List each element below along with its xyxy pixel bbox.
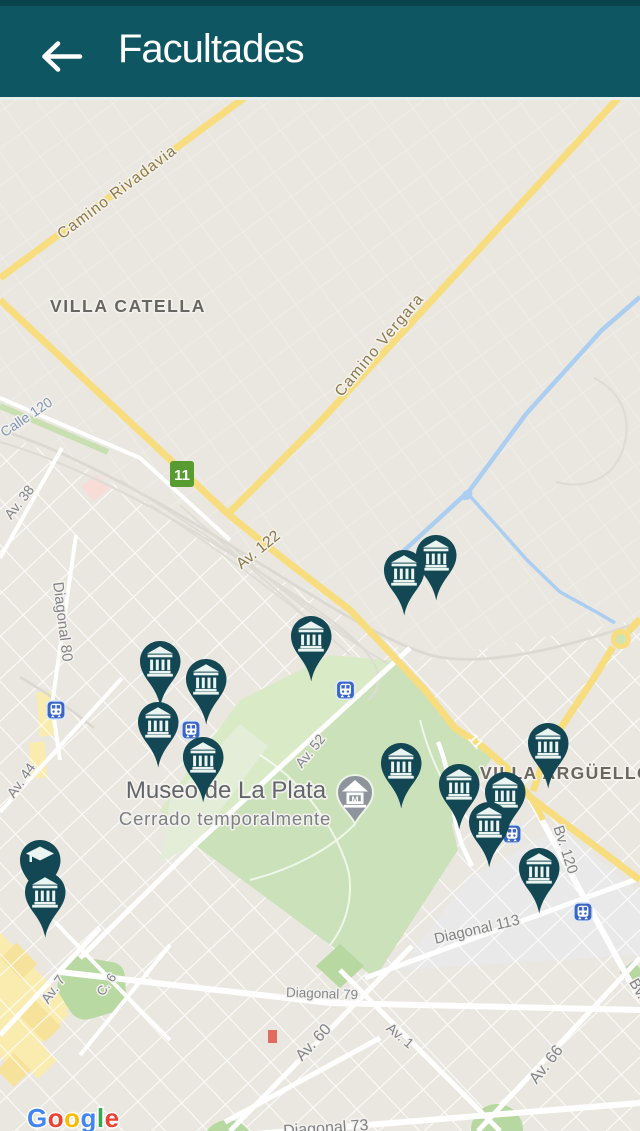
svg-text:Facultades: Facultades	[118, 27, 304, 71]
svg-text:11: 11	[174, 467, 190, 484]
svg-text:VILLA CATELLA: VILLA CATELLA	[50, 296, 206, 316]
svg-text:Google: Google	[27, 1103, 120, 1131]
svg-text:Museo de La Plata: Museo de La Plata	[126, 777, 327, 804]
svg-text:Cerrado temporalmente: Cerrado temporalmente	[119, 808, 331, 829]
svg-text:M: M	[351, 795, 358, 805]
svg-text:Diagonal 79: Diagonal 79	[286, 985, 359, 1003]
